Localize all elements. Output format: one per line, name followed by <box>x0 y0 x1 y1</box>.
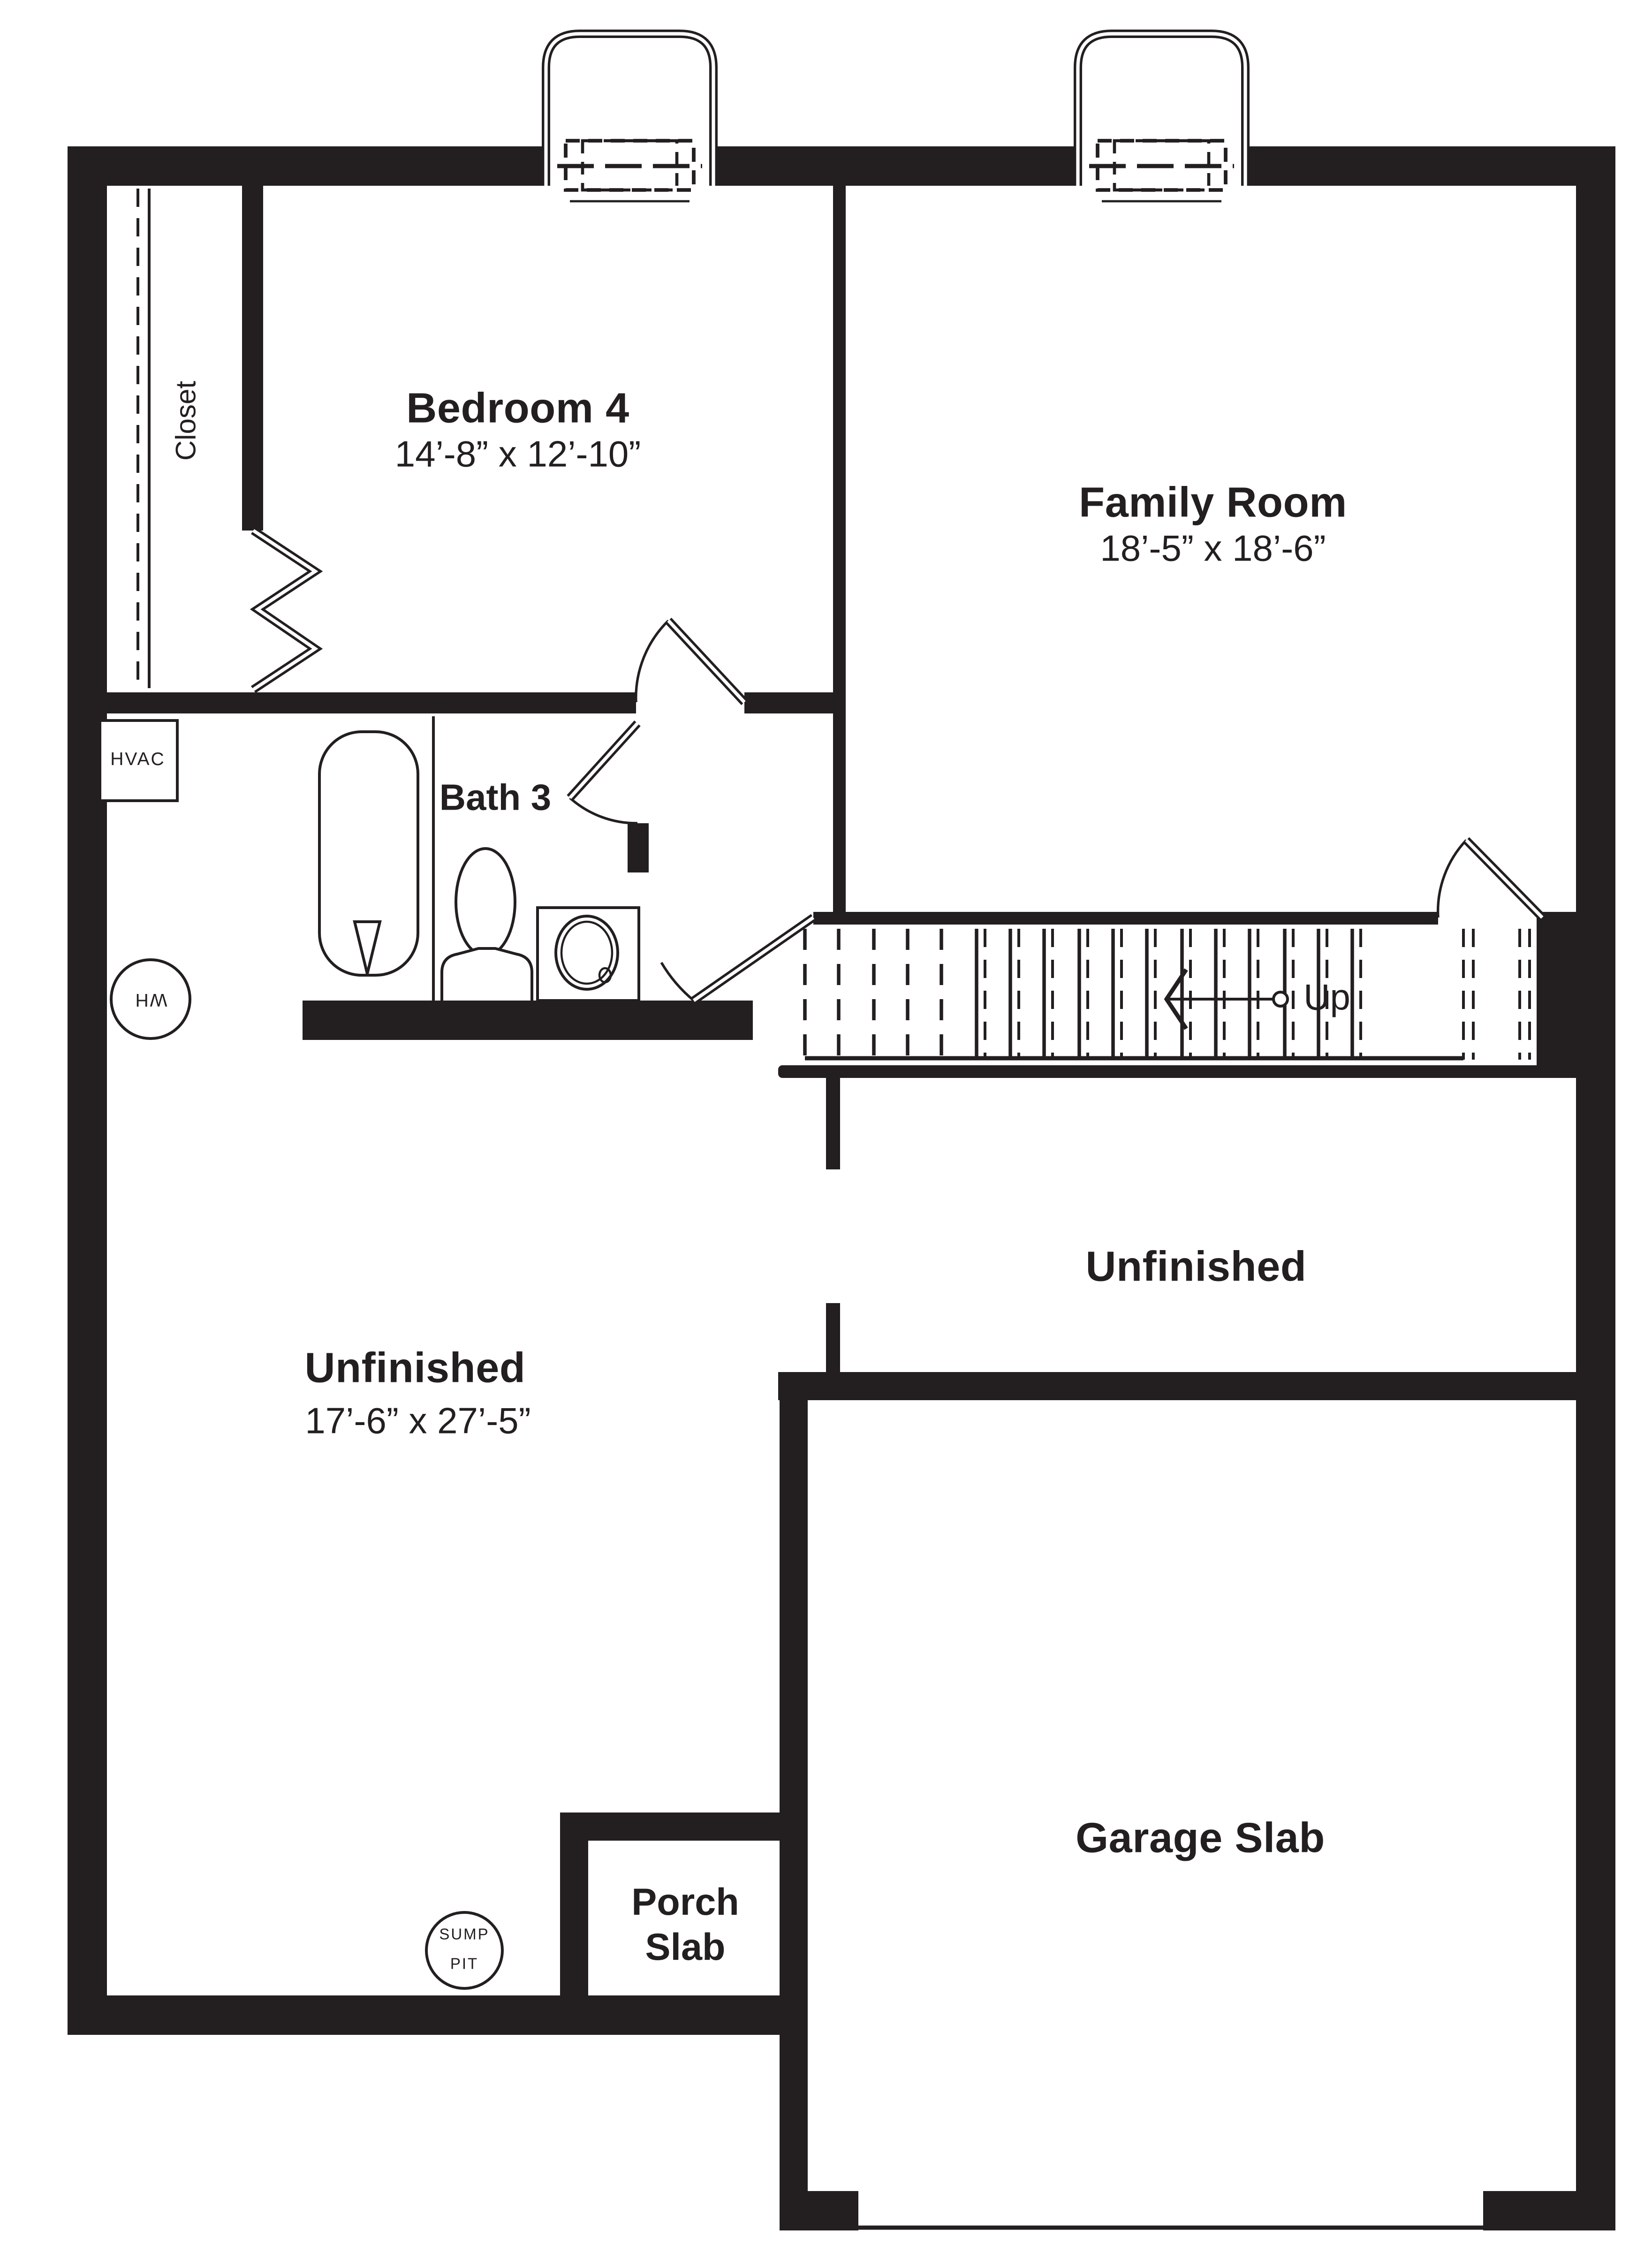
stairs-up-arrow-tail <box>1273 992 1288 1006</box>
staircase <box>805 929 1530 1060</box>
wall-stub-below-stairs <box>826 1078 840 1169</box>
bedroom-door-arc <box>636 621 668 702</box>
wall-bottom <box>68 1995 808 2035</box>
stairs-up-label: Up <box>1303 977 1350 1018</box>
bath-fixtures <box>319 716 639 1001</box>
floor-plan-drawing <box>0 0 1652 2260</box>
wall-garage-top <box>778 1372 1604 1400</box>
family-room-door <box>1438 840 1542 918</box>
hvac-label: HVAC <box>110 750 165 770</box>
wall-porch-top <box>560 1813 808 1841</box>
wall-stairs-top <box>813 912 1438 925</box>
wall-bath-bottom <box>303 1001 753 1040</box>
stair-hall-door-arc <box>661 963 694 1001</box>
wall-bedroom-bottom-right <box>744 692 846 713</box>
family-room-label: Family Room <box>1079 480 1347 528</box>
wall-stairs-bottom <box>778 1065 1604 1078</box>
bedroom4-dims: 14’-8” x 12’-10” <box>395 434 641 475</box>
wall-garage-left <box>780 1372 808 2230</box>
bath3-label: Bath 3 <box>440 777 551 818</box>
sump-pit-label: SUMP PIT <box>439 1921 489 1979</box>
wall-bedroom-family <box>833 186 846 925</box>
wall-top-mid <box>718 146 1074 186</box>
toilet-tank-icon <box>442 948 532 1001</box>
wall-bedroom-bottom-left <box>68 692 636 713</box>
toilet-bowl-icon <box>456 849 515 956</box>
wall-garage-foot-left <box>780 2191 858 2230</box>
page: Closet Bedroom 4 14’-8” x 12’-10” Family… <box>0 0 1652 2260</box>
floor-plan: Closet Bedroom 4 14’-8” x 12’-10” Family… <box>0 0 1652 2260</box>
family-room-door-arc <box>1438 840 1466 918</box>
unfinished-left-dims: 17’-6” x 27’-5” <box>305 1401 530 1441</box>
wall-right <box>1576 146 1615 2230</box>
garage-slab-label: Garage Slab <box>1076 1816 1325 1863</box>
wall-closet-right <box>242 186 263 531</box>
water-heater-label: WH <box>134 989 167 1009</box>
wall-left <box>68 146 107 2035</box>
closet-bifold-door <box>253 531 315 690</box>
porch-slab-label: Porch Slab <box>631 1880 739 1971</box>
wall-porch-left <box>560 1841 588 1995</box>
bath-door-arc <box>570 798 637 823</box>
bath-door <box>570 723 637 823</box>
window-family-room <box>1078 34 1245 201</box>
closet-label: Closet <box>171 381 203 461</box>
wall-top-right <box>1250 146 1604 186</box>
window-bedroom <box>546 34 713 201</box>
wall-garage-foot-right <box>1483 2191 1604 2230</box>
unfinished-right-label: Unfinished <box>1086 1244 1307 1292</box>
bedroom-door <box>636 621 744 702</box>
wall-stairs-right-chunk <box>1537 912 1576 1078</box>
bedroom4-label: Bedroom 4 <box>406 386 629 433</box>
unfinished-left-label: Unfinished <box>305 1346 526 1393</box>
tub-drain-icon <box>355 922 380 974</box>
stair-hall-door <box>661 918 813 1001</box>
wall-nub-above-garage <box>826 1303 840 1372</box>
wall-top-left <box>68 146 542 186</box>
wall-bath-right-stub <box>628 823 649 872</box>
family-room-dims: 18’-5” x 18’-6” <box>1100 528 1326 569</box>
